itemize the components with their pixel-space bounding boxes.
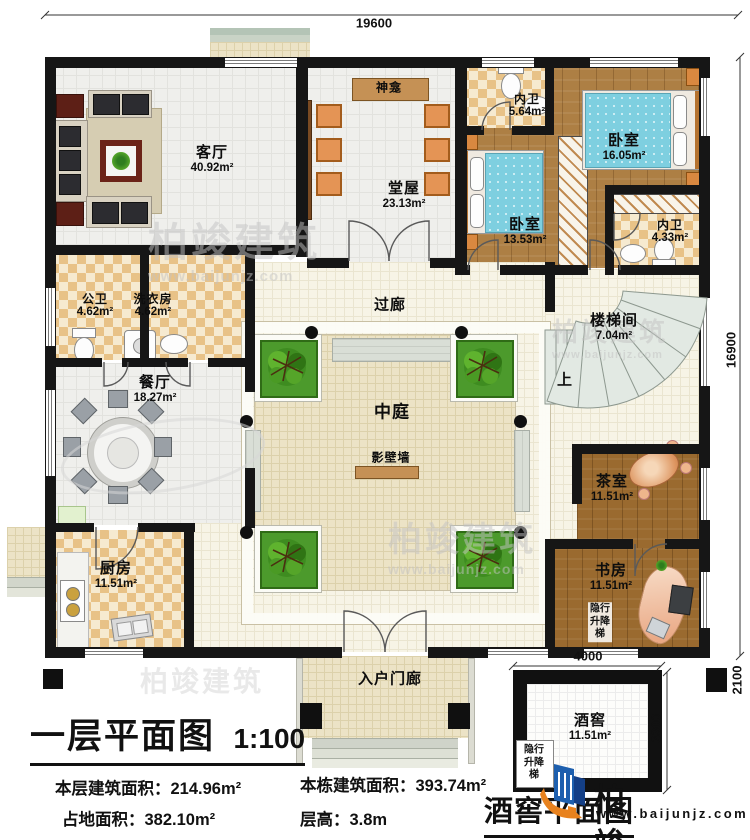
window <box>701 298 710 386</box>
room-label-dining: 餐厅 18.27m² <box>134 375 177 405</box>
porch-column <box>448 703 470 729</box>
room-label-stair: 楼梯间 7.04m² <box>590 313 638 343</box>
label-up: 上 <box>557 373 573 390</box>
pillow <box>673 95 687 129</box>
courtyard-paving-right <box>514 430 530 512</box>
wall <box>605 185 614 275</box>
closet-strip <box>612 194 702 214</box>
planter <box>260 531 318 589</box>
dim-cellar-width: 4000 <box>574 649 603 664</box>
desk-plant <box>656 560 667 571</box>
wall <box>50 523 94 532</box>
pillow <box>470 194 484 228</box>
dim-top: 19600 <box>356 16 392 31</box>
room-label-bath-top: 内卫 5.64m² <box>509 93 545 119</box>
side-table <box>56 202 84 226</box>
column <box>455 326 468 339</box>
corner-column <box>43 669 63 689</box>
sink <box>160 334 188 354</box>
page-title: 一层平面图 <box>30 717 215 756</box>
porch-steps <box>312 738 458 768</box>
wall <box>572 444 700 454</box>
wall <box>608 185 710 194</box>
porch-floor <box>300 656 470 738</box>
room-label-bath-right: 内卫 4.33m² <box>652 219 688 245</box>
room-label-tea: 茶室 11.51m² <box>591 474 633 504</box>
watermark: 柏竣建筑 <box>140 660 264 700</box>
floor-plan-page: 柏竣建筑 www.baijunjz.com 柏竣建筑 www.baijunjz.… <box>0 0 750 840</box>
room-label-bed-master: 卧室 16.05m² <box>603 133 646 163</box>
chair <box>424 138 450 162</box>
wall <box>45 245 307 255</box>
screen-wall-bar <box>355 466 419 479</box>
title-block: 一层平面图 1:100 <box>30 708 305 766</box>
planter <box>260 340 318 398</box>
wall <box>428 647 710 658</box>
pillow <box>470 157 484 191</box>
dim-right: 16900 <box>724 332 739 368</box>
chair <box>424 104 450 128</box>
window <box>701 468 710 520</box>
room-label-laundry: 洗衣房 4.62m² <box>133 293 172 319</box>
coffee-table <box>100 140 142 182</box>
wall <box>545 539 633 549</box>
tea-stool <box>638 488 650 500</box>
room-label-cellar: 酒窖 11.51m² <box>569 713 611 743</box>
courtyard-paving-top <box>332 338 452 362</box>
sofa <box>86 196 152 228</box>
chair <box>316 138 342 162</box>
wall <box>572 444 582 504</box>
planter <box>456 531 514 589</box>
wall <box>545 539 555 658</box>
window <box>590 58 678 67</box>
top-terrace-floor <box>210 42 310 57</box>
shaft-block <box>706 668 727 692</box>
stat-total-area: 本栋建筑面积：393.74m² <box>300 772 486 796</box>
chair <box>316 172 342 196</box>
stat-land-area: 占地面积：382.10m² <box>62 806 215 830</box>
room-label-shrine: 神龛 <box>376 81 402 94</box>
sofa <box>54 120 88 202</box>
dim-shaft: 2100 <box>730 666 745 695</box>
wall <box>45 358 102 367</box>
top-terrace-band <box>210 35 310 42</box>
side-table <box>56 94 84 118</box>
room-label-kitchen: 厨房 11.51m² <box>95 561 137 591</box>
stat-floor-height: 层高：3.8m <box>300 806 387 830</box>
column <box>514 526 527 539</box>
room-label-bed-second: 卧室 13.53m² <box>504 217 547 247</box>
room-label-living: 客厅 40.92m² <box>191 145 234 175</box>
brand-url: www.baijunjz.com <box>596 806 748 821</box>
column <box>514 415 527 428</box>
sink <box>620 244 646 263</box>
window <box>482 58 534 67</box>
wall <box>122 358 188 367</box>
dining-chair <box>108 390 128 408</box>
wall <box>455 57 467 268</box>
chair <box>424 172 450 196</box>
brand-logo: 柏竣建筑 www.baijunjz.com <box>538 760 590 827</box>
window <box>701 572 710 628</box>
dim-cellar-height: 3300 <box>649 714 664 743</box>
stat-floor-area: 本层建筑面积：214.96m² <box>55 775 241 799</box>
room-label-pub-bath: 公卫 4.62m² <box>77 293 113 319</box>
wall <box>307 258 349 268</box>
wall <box>208 358 250 367</box>
column <box>240 526 253 539</box>
brand-logo-icon <box>538 760 590 822</box>
wall <box>618 265 710 275</box>
window <box>225 58 297 67</box>
room-label-hall: 堂屋 23.13m² <box>383 181 426 211</box>
dining-chair <box>108 486 128 504</box>
planter <box>456 340 514 398</box>
room-label-atrium: 中庭 <box>374 402 410 421</box>
label-elevator-study: 隐行 升降 梯 <box>588 602 612 642</box>
wall <box>245 252 255 392</box>
label-screen-wall: 影壁墙 <box>371 451 410 464</box>
wall <box>245 468 255 528</box>
column <box>305 326 318 339</box>
room-label-porch: 入户门廊 <box>358 672 422 689</box>
dining-chair <box>63 437 81 457</box>
tea-stool <box>680 462 692 474</box>
wall <box>665 539 710 549</box>
chair <box>316 104 342 128</box>
wall <box>296 57 308 257</box>
top-terrace-band <box>210 28 310 35</box>
wall <box>500 265 588 275</box>
window <box>46 288 55 346</box>
window <box>701 78 710 136</box>
west-walkway-floor <box>192 523 245 652</box>
wall <box>545 57 554 135</box>
dining-chair <box>154 437 172 457</box>
pillow <box>673 132 687 166</box>
room-label-study: 书房 11.51m² <box>590 563 632 593</box>
wall <box>184 523 194 657</box>
column <box>240 415 253 428</box>
window <box>46 390 55 476</box>
window <box>488 649 548 658</box>
window <box>85 649 143 658</box>
plan-scale: 1:100 <box>233 723 305 754</box>
room-label-corridor: 过廊 <box>374 298 406 315</box>
wall <box>460 126 484 135</box>
monitor <box>668 585 694 616</box>
wall <box>455 265 470 275</box>
sofa <box>88 90 152 118</box>
stairwell-floor <box>545 269 710 459</box>
wall <box>545 262 555 312</box>
stove <box>60 580 85 622</box>
